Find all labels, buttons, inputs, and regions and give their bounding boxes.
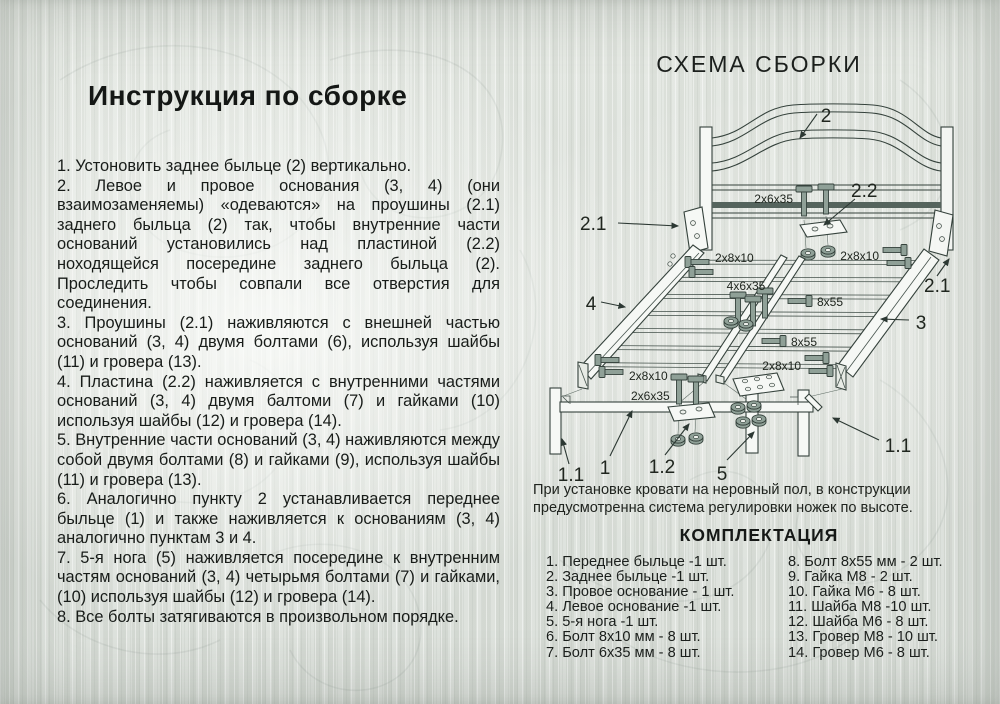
- callout-1: 1: [600, 458, 611, 479]
- front-rail-assembly: [550, 373, 842, 456]
- parts-item: 8. Болт 8х55 мм - 2 шт.: [788, 555, 943, 570]
- nut: [739, 320, 753, 331]
- hw-label-4x6x35: 4x6x35: [727, 279, 766, 293]
- instruction-step: 8. Все болты затягиваются в произвольном…: [57, 608, 500, 628]
- bolt-2x8x10: [689, 267, 713, 278]
- parts-section: КОМПЛЕКТАЦИЯ 1. Переднее быльце -1 шт. 2…: [530, 525, 988, 670]
- instruction-step: 2. Левое и провое основания (3, 4) (они …: [57, 177, 500, 314]
- parts-item: 4. Левое основание -1 шт.: [546, 600, 734, 615]
- parts-item: 5. 5-я нога -1 шт.: [546, 615, 734, 630]
- bolt-2x8x10: [805, 353, 829, 364]
- instruction-step: 7. 5-я нога (5) наживляется посередине к…: [57, 549, 500, 608]
- nut: [731, 403, 745, 414]
- instruction-step: 3. Проушины (2.1) наживляются с внешней …: [57, 314, 500, 373]
- front-leg-left: [550, 388, 561, 454]
- callout-2-2: 2.2: [851, 181, 877, 202]
- callout-2: 2: [821, 106, 832, 127]
- bolt-2x8x10: [883, 245, 907, 256]
- bolt-2x8x10: [599, 367, 623, 378]
- parts-item: 9. Гайка М8 - 2 шт.: [788, 570, 943, 585]
- parts-item: 14. Гровер М6 - 8 шт.: [788, 646, 943, 661]
- bolt-8x55: [762, 336, 786, 347]
- assembly-diagram: 2x6x35 2x8x10 2x8x10 4x6x35 8x55 8x55 2x…: [525, 90, 995, 490]
- parts-item: 1. Переднее быльце -1 шт.: [546, 555, 734, 570]
- parts-item: 11. Шайба М8 -10 шт.: [788, 600, 943, 615]
- callout-1-2: 1.2: [649, 457, 675, 478]
- hw-label-2x8x10: 2x8x10: [840, 249, 879, 263]
- leveling-note: При установке кровати на неровный пол, в…: [533, 482, 985, 517]
- nut: [747, 401, 761, 412]
- parts-item: 7. Болт 6х35 мм - 8 шт.: [546, 646, 734, 661]
- bolt-8x55: [788, 296, 812, 307]
- parts-item: 13. Гровер М8 - 10 шт.: [788, 630, 943, 645]
- instruction-step: 5. Внутренние части оснований (3, 4) наж…: [57, 431, 500, 490]
- nut: [752, 415, 766, 426]
- nut: [736, 417, 750, 428]
- parts-item: 12. Шайба М6 - 8 шт.: [788, 615, 943, 630]
- parts-item: 3. Провое основание - 1 шт.: [546, 585, 734, 600]
- hw-label-2x8x10: 2x8x10: [629, 369, 668, 383]
- instruction-step: 6. Аналогично пункту 2 устанавливается п…: [57, 490, 500, 549]
- instruction-sheet-page: Инструкция по сборке 1. Устоновить задне…: [0, 0, 1000, 704]
- diagram-title: СХЕМА СБОРКИ: [530, 51, 988, 78]
- callout-1-1: 1.1: [885, 436, 911, 457]
- parts-title: КОМПЛЕКТАЦИЯ: [530, 525, 988, 546]
- fifth-leg-plate: [733, 373, 784, 396]
- headboard-arch-inner: [712, 130, 941, 163]
- instructions-title: Инструкция по сборке: [88, 80, 407, 112]
- hw-label-2x8x10: 2x8x10: [715, 251, 754, 265]
- hw-label-2x8x10: 2x8x10: [762, 359, 801, 373]
- nut: [724, 317, 738, 328]
- instruction-step: 4. Пластина (2.2) наживляется с внутренн…: [57, 373, 500, 432]
- parts-item: 6. Болт 8х10 мм - 8 шт.: [546, 630, 734, 645]
- bolt-2x8x10: [809, 366, 833, 377]
- parts-list-left: 1. Переднее быльце -1 шт. 2. Заднее быль…: [546, 555, 734, 661]
- instructions-steps: 1. Устоновить заднее быльце (2) вертикал…: [57, 157, 500, 627]
- nut: [689, 433, 703, 444]
- parts-item: 2. Заднее быльце -1 шт.: [546, 570, 734, 585]
- hw-label-8x55: 8x55: [817, 295, 843, 309]
- callout-2-1: 2.1: [580, 214, 606, 235]
- hw-label-8x55: 8x55: [791, 335, 817, 349]
- parts-item: 10. Гайка М6 - 8 шт.: [788, 585, 943, 600]
- hw-label-2x6x35: 2x6x35: [754, 192, 793, 206]
- parts-list-right: 8. Болт 8х55 мм - 2 шт. 9. Гайка М8 - 2 …: [788, 555, 943, 661]
- center-plate-2-2: [800, 220, 847, 237]
- instruction-step: 1. Устоновить заднее быльце (2) вертикал…: [57, 157, 500, 177]
- bolt-2x6x35: [818, 184, 834, 214]
- bolt-2x6x35: [671, 374, 687, 404]
- nut: [821, 246, 835, 257]
- parts-lists: 1. Переднее быльце -1 шт. 2. Заднее быль…: [530, 555, 988, 670]
- bolt-2x6x35: [796, 186, 812, 216]
- hw-label-2x6x35: 2x6x35: [631, 389, 670, 403]
- callout-2-1: 2.1: [924, 276, 950, 297]
- callout-4: 4: [586, 294, 597, 315]
- headboard-back: [684, 104, 953, 260]
- bolt-2x8x10: [887, 258, 911, 269]
- callout-3: 3: [916, 313, 927, 334]
